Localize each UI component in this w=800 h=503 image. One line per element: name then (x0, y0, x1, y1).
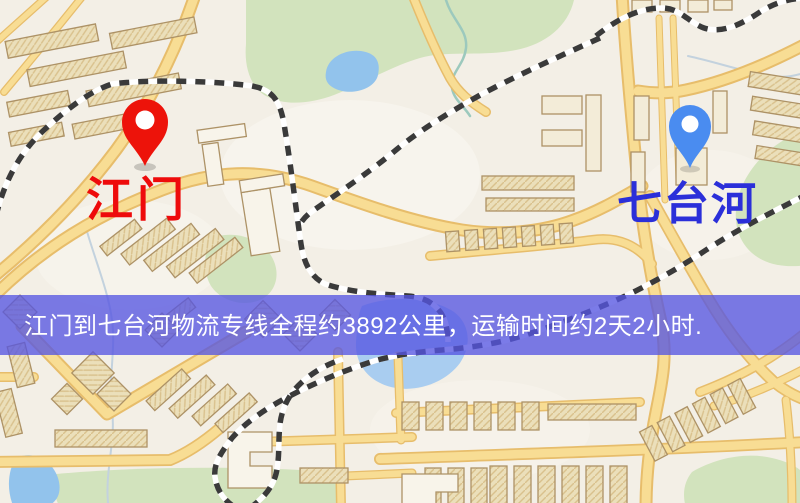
logistics-map-image: 江门 七台河 江门到七台河物流专线全程约3892公里，运输时间约2天2小时. (0, 0, 800, 503)
route-info-text: 江门到七台河物流专线全程约3892公里，运输时间约2天2小时. (24, 306, 702, 341)
origin-label: 江门 (86, 173, 188, 226)
map-canvas: 江门 七台河 (0, 0, 800, 503)
destination-label: 七台河 (617, 178, 758, 229)
route-info-banner: 江门到七台河物流专线全程约3892公里，运输时间约2天2小时. (0, 295, 800, 355)
